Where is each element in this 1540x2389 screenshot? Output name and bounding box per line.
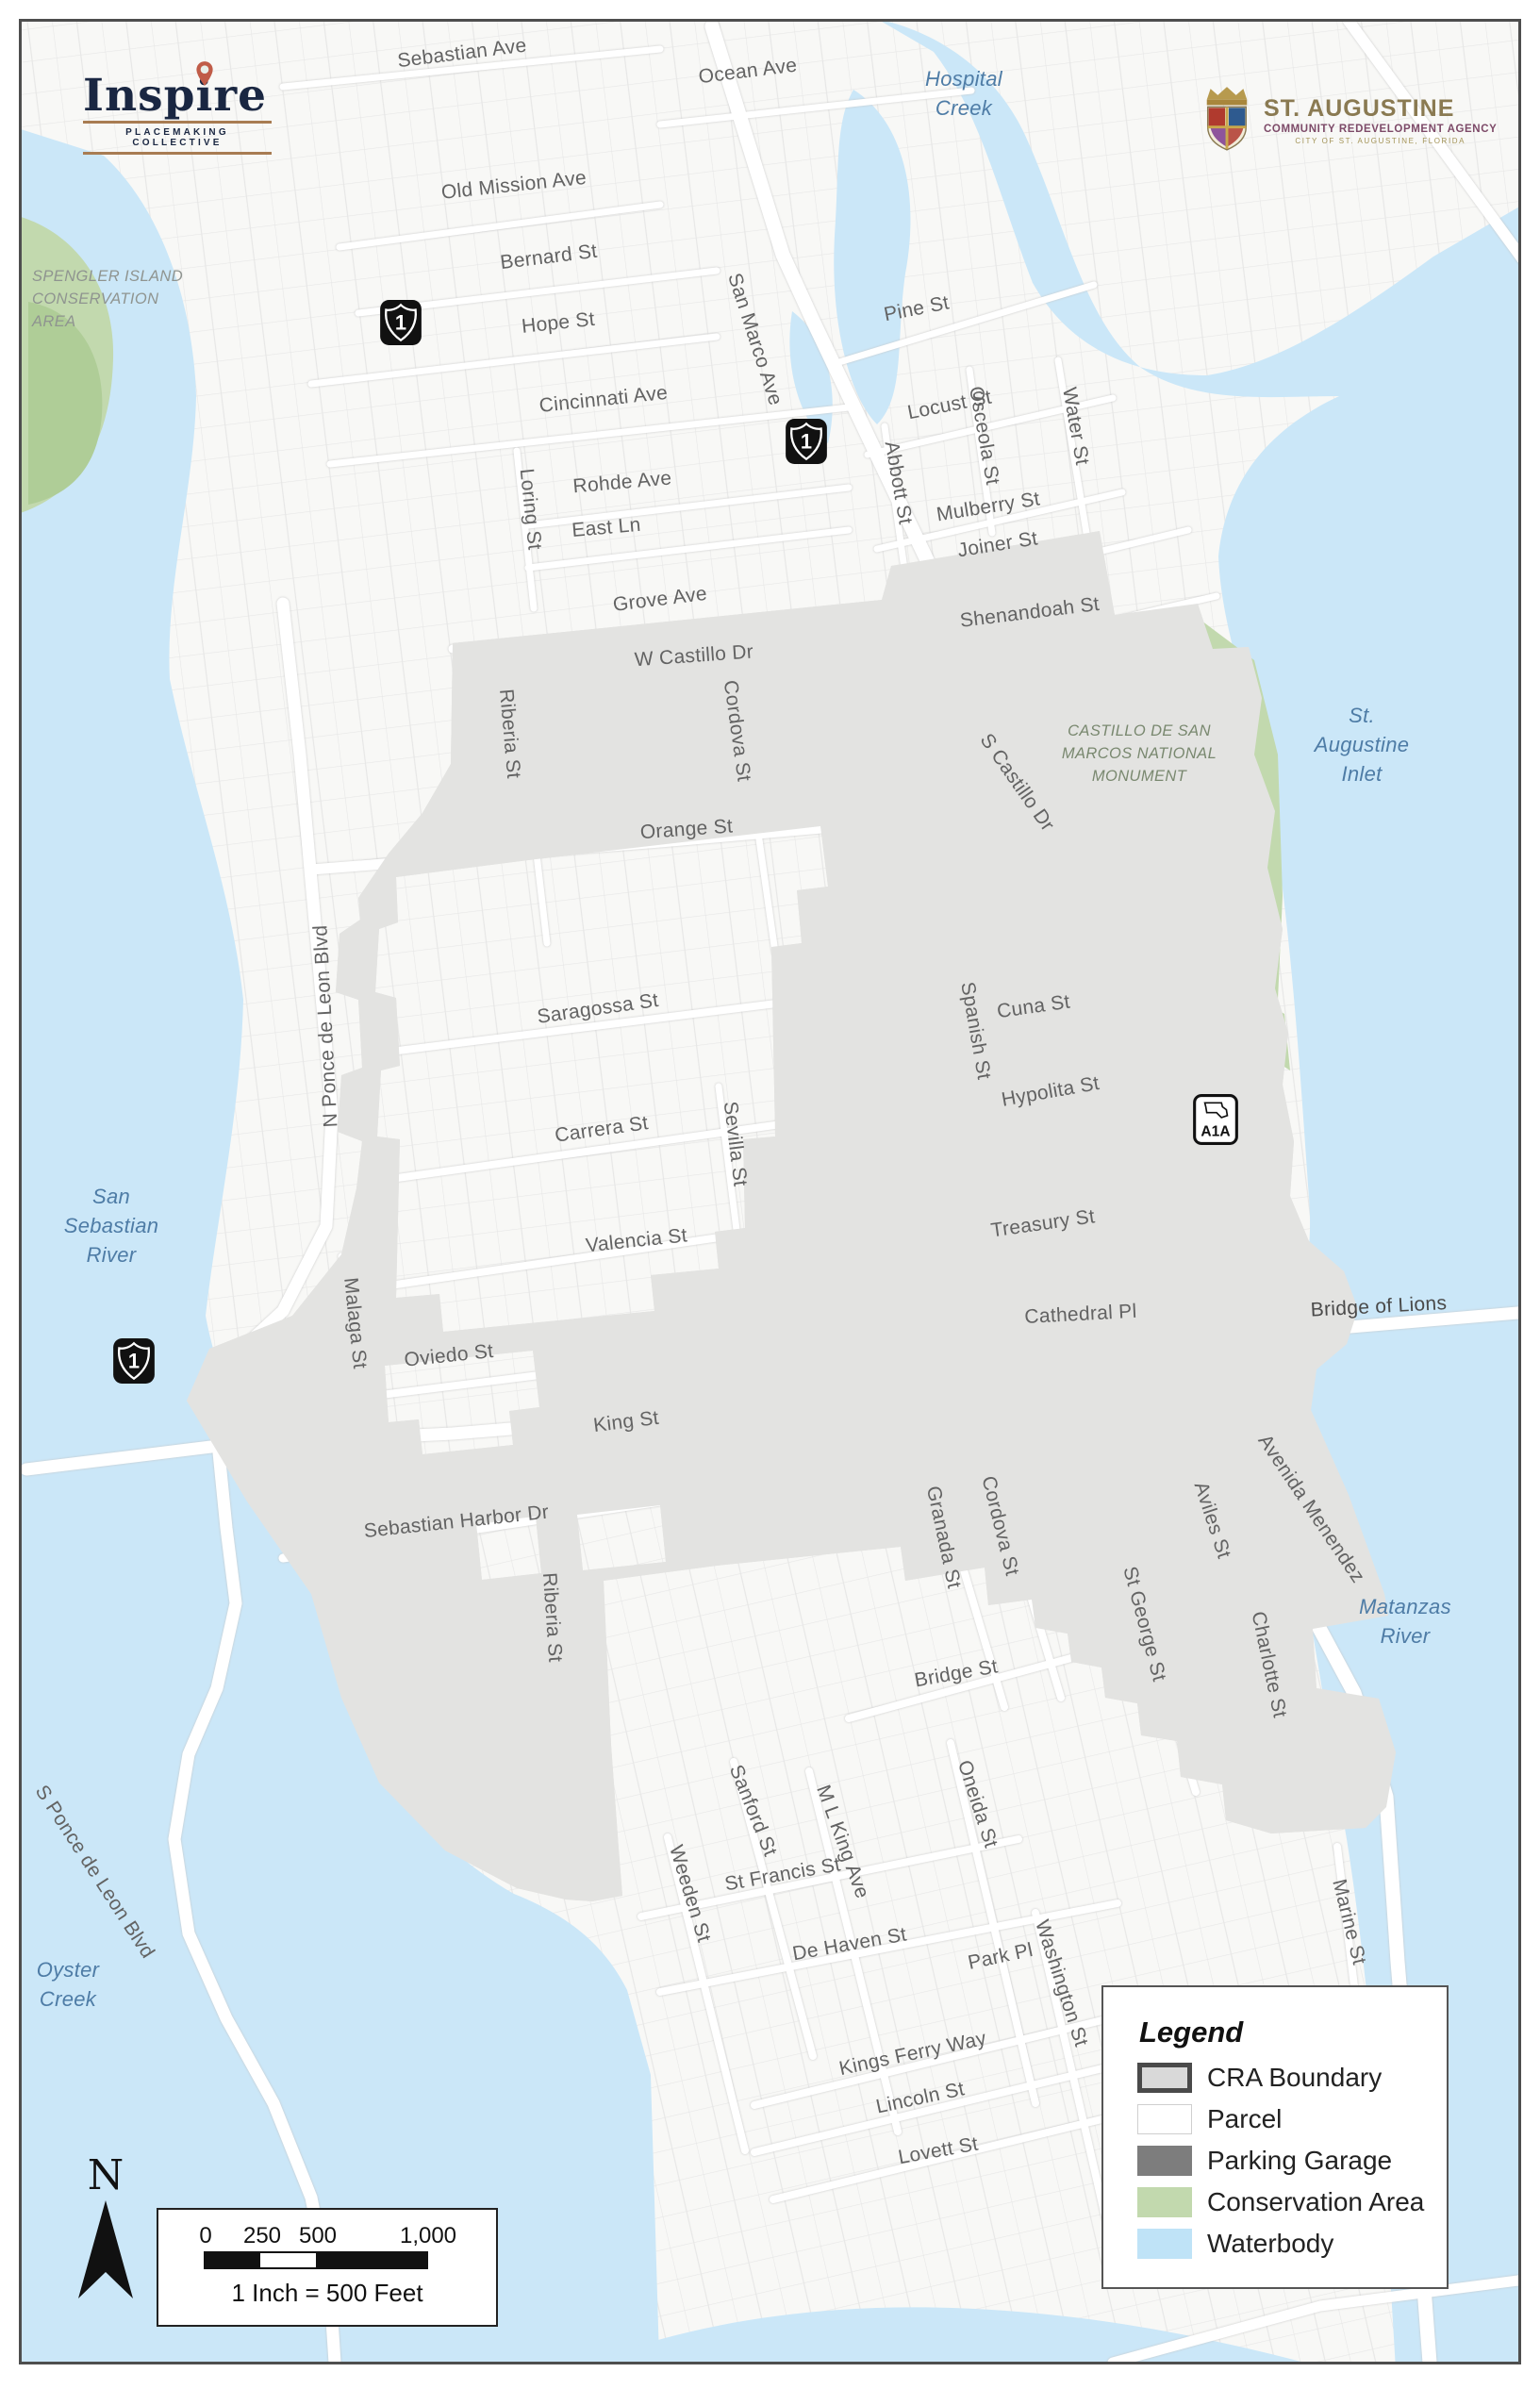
street-label: Shenandoah St [959,592,1101,634]
street-label: Cincinnati Ave [538,381,670,419]
street-label: Riberia St [537,1572,568,1664]
street-label: S Castillo Dr [974,729,1060,837]
svg-text:A1A: A1A [1201,1124,1230,1140]
legend-label: CRA Boundary [1207,2063,1382,2093]
street-label: Spanish St [954,980,996,1082]
street-label: Cordova St [717,679,755,784]
north-label: N [68,2155,143,2197]
street-label: San Marco Ave [721,271,787,409]
legend-swatch [1137,2063,1192,2093]
legend-item: CRA Boundary [1137,2063,1447,2093]
city-crest-icon [1200,83,1254,158]
street-label: Bridge of Lions [1310,1291,1448,1323]
street-label: Loring St [513,467,546,551]
legend-item: Waterbody [1137,2229,1447,2259]
street-label: Sebastian Ave [396,34,528,75]
legend-item: Parcel [1137,2104,1447,2134]
street-label: S Ponce de Leon Blvd [29,1781,159,1964]
street-label: Joiner St [956,526,1040,563]
water-label: Oyster Creek [37,1956,100,2015]
street-label: Osceola St [963,385,1004,488]
legend-swatch [1137,2146,1192,2176]
street-label: Sebastian Harbor Dr [363,1501,551,1545]
street-label: Saragossa St [536,988,660,1030]
north-arrow-icon [73,2197,139,2305]
water-label: San Sebastian River [64,1183,159,1269]
street-label: Cuna St [996,990,1072,1025]
logo-divider [83,152,272,155]
sheet-margin [1521,0,1540,2389]
street-label: Pine St [882,290,952,327]
street-label: Bernard St [499,240,599,276]
water-label: St. Augustine Inlet [1315,702,1410,788]
agency-logo: ST. AUGUSTINE COMMUNITY REDEVELOPMENT AG… [1200,83,1497,158]
scale-tick: 250 [243,2223,281,2249]
street-label: King St [592,1406,660,1439]
street-label: Riberia St [493,688,525,779]
street-label: Oviedo St [403,1339,494,1373]
legend: Legend CRA BoundaryParcelParking GarageC… [1101,1985,1449,2289]
scale-caption: 1 Inch = 500 Feet [158,2279,496,2308]
scale-bar-graphic [204,2251,428,2269]
legend-label: Waterbody [1207,2229,1333,2259]
inspire-logo: Inspire PLACEMAKING COLLECTIVE [83,74,272,155]
street-label: Park Pl [966,1938,1035,1976]
street-label: M L King Ave [810,1782,874,1902]
street-label: Abbott St [878,440,917,526]
street-label: Weeden St [663,1842,716,1945]
street-label: Treasury St [989,1204,1097,1243]
legend-title: Legend [1139,2016,1447,2049]
conservation-area-label: SPENGLER ISLAND CONSERVATION AREA [32,266,183,334]
sheet-margin [0,0,19,2389]
conservation-area-label: CASTILLO DE SAN MARCOS NATIONAL MONUMENT [1062,721,1217,788]
scale-bar: 0 250 500 1,000 1 Inch = 500 Feet [157,2208,498,2327]
street-label: Cordova St [975,1473,1024,1578]
inspire-wordmark: Inspire [83,74,272,118]
street-label: Charlotte St [1245,1609,1291,1719]
street-label: Carrera St [554,1111,651,1149]
street-label: Ocean Ave [697,54,798,91]
legend-item: Parking Garage [1137,2146,1447,2176]
street-label: Old Mission Ave [440,166,588,206]
street-label: Marine St [1326,1877,1371,1967]
street-label: Lovett St [897,2132,981,2171]
water-label: Matanzas River [1359,1593,1451,1651]
legend-label: Parcel [1207,2104,1282,2134]
legend-label: Conservation Area [1207,2187,1424,2217]
street-label: Hypolita St [1000,1071,1101,1113]
svg-text:1: 1 [128,1349,140,1372]
street-label: St George St [1117,1564,1171,1684]
north-arrow: N [68,2155,143,2310]
street-label: Sevilla St [717,1100,752,1187]
agency-subtitle: COMMUNITY REDEVELOPMENT AGENCY [1264,124,1497,135]
street-label: Kings Ferry Way [837,2027,989,2082]
scale-tick: 0 [199,2223,211,2249]
street-label: Orange St [639,814,734,845]
scale-ticks: 0 250 500 1,000 [158,2223,496,2251]
legend-item: Conservation Area [1137,2187,1447,2217]
street-label: Malaga St [338,1276,372,1369]
street-label: East Ln [571,513,641,544]
street-label: Bridge St [913,1654,1000,1693]
svg-text:1: 1 [395,310,406,334]
street-label: St Francis St [723,1852,843,1897]
water-label: Hospital Creek [925,65,1002,124]
street-label: Sanford St [723,1762,783,1861]
legend-swatch [1137,2229,1192,2259]
street-label: Granada St [920,1484,967,1590]
sheet-margin [0,2364,1540,2389]
svg-text:1: 1 [801,429,812,453]
location-pin-icon [194,60,215,87]
street-label: N Ponce de Leon Blvd [308,924,343,1128]
map-sheet: { "branding": { "inspire": {"name": "Ins… [0,0,1540,2389]
street-label: Oneida St [952,1757,1003,1851]
street-label: Grove Ave [612,582,709,618]
legend-label: Parking Garage [1207,2146,1392,2176]
street-label: Rohde Ave [572,466,673,499]
us-route-shield-icon: 1 [785,418,828,470]
street-label: Lincoln St [874,2077,968,2119]
sheet-margin [0,0,1540,19]
legend-swatch [1137,2187,1192,2217]
street-label: W Castillo Dr [634,639,754,672]
agency-tagline: CITY OF ST. AUGUSTINE, FLORIDA [1264,137,1497,145]
a1a-route-shield-icon: A1A [1193,1094,1238,1150]
street-label: Avenida Menendez [1252,1430,1370,1587]
scale-tick: 1,000 [400,2223,456,2249]
us-route-shield-icon: 1 [112,1337,156,1389]
scale-tick: 500 [299,2223,337,2249]
street-label: Hope St [521,307,596,340]
street-label: De Haven St [790,1922,908,1966]
us-route-shield-icon: 1 [379,299,422,351]
street-label: Cathedral Pl [1024,1300,1137,1330]
agency-title: ST. AUGUSTINE [1264,95,1497,123]
street-label: Mulberry St [935,487,1041,527]
map-canvas: Sebastian AveOcean AveOld Mission AveBer… [0,0,1540,2389]
inspire-tagline: PLACEMAKING COLLECTIVE [83,127,272,148]
street-label: Valencia St [585,1223,688,1258]
street-label: Washington St [1029,1917,1093,2050]
legend-swatch [1137,2104,1192,2134]
street-label: Water St [1056,386,1094,468]
street-label: Aviles St [1188,1479,1236,1562]
